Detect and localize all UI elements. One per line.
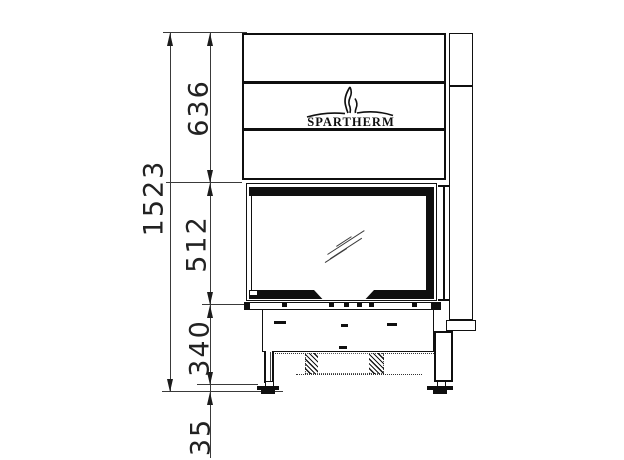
plinth-slot bbox=[387, 323, 397, 326]
dimension-label-total: 1523 bbox=[141, 160, 168, 237]
technical-drawing-canvas: 1523 636 512 340 35 SPARTHERM bbox=[0, 0, 624, 460]
casing-edge-line bbox=[443, 186, 445, 301]
vent-slot bbox=[369, 303, 374, 307]
plinth-slot bbox=[274, 321, 286, 324]
door-frame-notch bbox=[250, 291, 257, 295]
right-leg bbox=[434, 331, 453, 382]
plinth-slot bbox=[339, 346, 347, 349]
vent-slot bbox=[412, 303, 417, 307]
dimension-label-door: 512 bbox=[184, 215, 211, 273]
door-frame-top-bar bbox=[249, 187, 434, 196]
side-panel-foot-flange bbox=[446, 320, 476, 331]
door-handle bbox=[314, 290, 374, 299]
vent-slot bbox=[282, 303, 287, 307]
arrow-hood-top-icon bbox=[207, 33, 213, 46]
hidden-duct-hatch-left bbox=[305, 353, 318, 374]
side-panel bbox=[449, 33, 473, 320]
casing-edge-bottom-nub bbox=[438, 299, 450, 301]
arrow-door-bottom-icon bbox=[207, 292, 213, 305]
leveling-foot-left-pad bbox=[261, 389, 275, 394]
plinth-panel bbox=[262, 309, 434, 352]
dimension-label-base: 340 bbox=[187, 319, 214, 377]
dimension-label-hood: 636 bbox=[186, 79, 213, 137]
extension-line-top bbox=[163, 32, 247, 33]
dimension-line-total bbox=[170, 33, 171, 392]
flame-icon bbox=[300, 84, 400, 118]
hidden-duct-bottom-line bbox=[296, 374, 422, 375]
arrow-hood-bottom-icon bbox=[207, 170, 213, 183]
arrow-total-top-icon bbox=[167, 33, 173, 46]
vent-slot bbox=[329, 303, 334, 307]
dimension-label-foot: 35 bbox=[188, 418, 215, 456]
vent-strip-left-cap bbox=[244, 302, 250, 310]
brand-wordmark: SPARTHERM bbox=[303, 115, 399, 130]
vent-slot bbox=[344, 303, 349, 307]
hidden-duct-hatch-right bbox=[369, 353, 384, 374]
left-leg bbox=[264, 351, 274, 383]
arrow-base-top-icon bbox=[207, 305, 213, 318]
extension-line-hood-bottom bbox=[166, 182, 242, 183]
vent-slot bbox=[357, 303, 362, 307]
arrow-door-top-icon bbox=[207, 183, 213, 196]
door-frame-right-bar bbox=[426, 187, 434, 298]
arrow-total-bottom-icon bbox=[167, 379, 173, 392]
casing-edge-top-nub bbox=[438, 185, 449, 187]
side-panel-seam bbox=[450, 85, 472, 87]
left-leg-inner-edge bbox=[270, 352, 271, 383]
leveling-foot-right-pad bbox=[433, 389, 447, 394]
arrow-foot-bottom-icon bbox=[207, 392, 213, 405]
plinth-slot bbox=[341, 324, 348, 327]
